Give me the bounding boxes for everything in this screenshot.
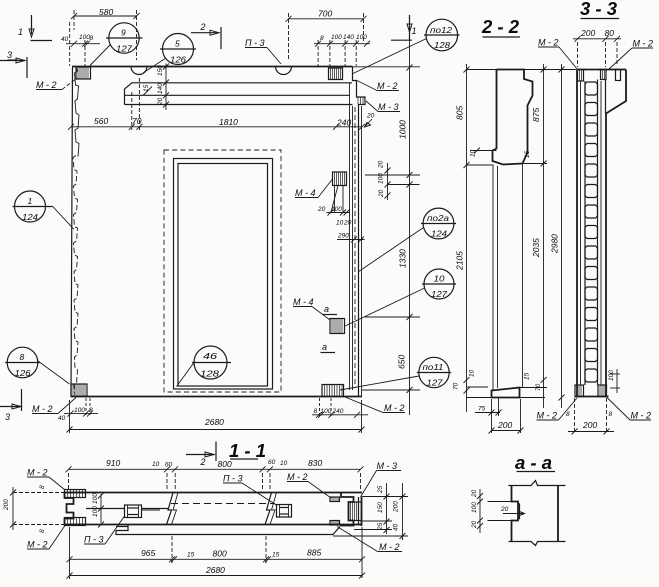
- svg-text:100: 100: [471, 502, 478, 513]
- svg-text:150: 150: [377, 502, 384, 513]
- svg-text:1: 1: [28, 196, 33, 206]
- svg-text:75: 75: [478, 406, 486, 413]
- svg-text:15: 15: [143, 84, 150, 92]
- svg-text:М - 3: М - 3: [377, 461, 398, 471]
- svg-text:885: 885: [307, 548, 321, 558]
- svg-text:10: 10: [434, 274, 445, 284]
- svg-text:910: 910: [106, 458, 120, 468]
- svg-text:126: 126: [15, 368, 31, 378]
- svg-text:М - 2: М - 2: [631, 411, 652, 421]
- svg-text:100: 100: [331, 206, 342, 213]
- svg-text:805: 805: [455, 106, 465, 120]
- svg-text:2035: 2035: [531, 238, 541, 258]
- svg-text:46: 46: [203, 351, 217, 361]
- svg-text:100: 100: [608, 370, 615, 381]
- svg-text:3: 3: [7, 50, 12, 60]
- svg-text:200: 200: [497, 420, 512, 430]
- svg-text:15: 15: [524, 372, 531, 380]
- svg-text:П - 3: П - 3: [223, 474, 243, 484]
- svg-text:8: 8: [39, 485, 46, 489]
- svg-text:М - 2: М - 2: [377, 81, 398, 91]
- svg-text:100: 100: [356, 34, 367, 41]
- svg-text:200: 200: [582, 420, 597, 430]
- svg-text:20: 20: [471, 489, 478, 498]
- svg-text:15: 15: [187, 552, 195, 559]
- svg-text:15: 15: [524, 150, 531, 158]
- svg-text:128: 128: [434, 40, 450, 50]
- svg-text:М - 2: М - 2: [27, 468, 48, 478]
- svg-text:124: 124: [22, 212, 38, 222]
- svg-text:150: 150: [157, 65, 164, 76]
- svg-text:a: a: [322, 342, 327, 352]
- svg-text:70: 70: [453, 382, 460, 390]
- svg-text:200: 200: [3, 499, 10, 511]
- svg-text:140: 140: [157, 83, 164, 94]
- svg-text:10: 10: [469, 369, 476, 377]
- svg-text:20: 20: [378, 189, 385, 198]
- svg-text:2: 2: [200, 22, 206, 32]
- svg-text:8: 8: [314, 408, 318, 415]
- svg-text:2 - 2: 2 - 2: [481, 16, 520, 37]
- svg-text:8: 8: [609, 411, 613, 418]
- svg-text:10: 10: [336, 220, 344, 227]
- svg-text:127: 127: [431, 289, 447, 299]
- svg-text:М - 2: М - 2: [379, 542, 400, 552]
- svg-text:800: 800: [213, 549, 227, 559]
- svg-text:580: 580: [99, 7, 113, 17]
- svg-text:830: 830: [308, 458, 322, 468]
- svg-text:60: 60: [268, 459, 276, 466]
- svg-text:127: 127: [116, 44, 132, 54]
- svg-text:2980: 2980: [550, 234, 560, 254]
- svg-text:700: 700: [318, 9, 332, 19]
- svg-text:9: 9: [121, 28, 126, 38]
- svg-text:2680: 2680: [205, 565, 225, 575]
- svg-text:200: 200: [580, 28, 595, 38]
- svg-text:1330: 1330: [398, 249, 408, 268]
- svg-text:20: 20: [343, 220, 352, 227]
- svg-text:М - 2: М - 2: [538, 38, 559, 48]
- svg-text:М - 2: М - 2: [27, 540, 48, 550]
- svg-text:8: 8: [39, 529, 46, 533]
- svg-text:100: 100: [378, 173, 385, 184]
- svg-text:875: 875: [531, 108, 541, 122]
- svg-text:по11: по11: [423, 362, 444, 372]
- svg-text:128: 128: [200, 369, 219, 379]
- svg-text:20: 20: [378, 160, 385, 169]
- svg-text:70: 70: [132, 116, 142, 126]
- svg-text:200: 200: [393, 501, 400, 513]
- svg-text:40: 40: [58, 415, 66, 422]
- svg-text:5: 5: [175, 39, 180, 49]
- svg-text:8: 8: [566, 411, 570, 418]
- svg-text:100: 100: [74, 407, 85, 414]
- svg-text:М - 2: М - 2: [633, 39, 654, 49]
- svg-text:по12: по12: [430, 25, 452, 35]
- svg-text:127: 127: [427, 378, 443, 388]
- svg-text:240: 240: [332, 408, 344, 415]
- svg-text:140: 140: [343, 34, 354, 41]
- svg-text:40: 40: [61, 36, 69, 43]
- svg-text:П - 3: П - 3: [84, 535, 104, 545]
- svg-text:10: 10: [152, 461, 160, 468]
- svg-text:М - 2: М - 2: [537, 411, 558, 421]
- svg-text:20: 20: [317, 206, 326, 213]
- svg-text:2680: 2680: [204, 417, 224, 427]
- svg-text:М - 4: М - 4: [293, 297, 314, 307]
- svg-text:124: 124: [431, 229, 447, 239]
- svg-text:М - 2: М - 2: [32, 404, 53, 414]
- svg-text:650: 650: [397, 355, 407, 369]
- svg-text:965: 965: [141, 548, 155, 558]
- svg-text:20: 20: [157, 97, 164, 106]
- svg-text:1: 1: [412, 26, 417, 36]
- svg-text:8: 8: [20, 352, 25, 362]
- svg-text:20: 20: [500, 506, 509, 513]
- svg-text:a: a: [324, 304, 329, 314]
- svg-text:1 - 1: 1 - 1: [229, 440, 266, 461]
- svg-text:560: 560: [94, 116, 108, 126]
- svg-text:П - 3: П - 3: [245, 38, 265, 48]
- svg-text:800: 800: [218, 459, 232, 469]
- svg-text:20: 20: [366, 113, 375, 120]
- svg-text:3: 3: [5, 412, 10, 422]
- svg-text:1: 1: [18, 27, 23, 37]
- svg-text:15: 15: [272, 552, 280, 559]
- svg-text:240: 240: [336, 118, 351, 128]
- svg-text:40: 40: [393, 523, 400, 531]
- svg-text:1810: 1810: [219, 117, 238, 127]
- svg-text:25: 25: [377, 485, 384, 494]
- svg-text:2105: 2105: [455, 251, 465, 271]
- svg-text:3 - 3: 3 - 3: [580, 0, 618, 19]
- svg-text:по2а: по2а: [427, 213, 449, 223]
- svg-text:М - 2: М - 2: [384, 403, 405, 413]
- svg-text:2: 2: [200, 457, 206, 467]
- svg-text:290: 290: [337, 233, 349, 240]
- svg-text:10: 10: [280, 460, 288, 467]
- svg-text:1000: 1000: [398, 120, 408, 139]
- svg-text:М - 4: М - 4: [295, 188, 316, 198]
- svg-text:М - 2: М - 2: [287, 472, 308, 482]
- svg-text:20: 20: [471, 520, 478, 529]
- svg-text:a - a: a - a: [515, 452, 552, 473]
- svg-text:80: 80: [605, 28, 615, 38]
- svg-text:М - 3: М - 3: [378, 102, 399, 112]
- svg-text:100: 100: [331, 34, 342, 41]
- svg-text:М - 2: М - 2: [36, 80, 57, 90]
- svg-text:126: 126: [170, 55, 186, 65]
